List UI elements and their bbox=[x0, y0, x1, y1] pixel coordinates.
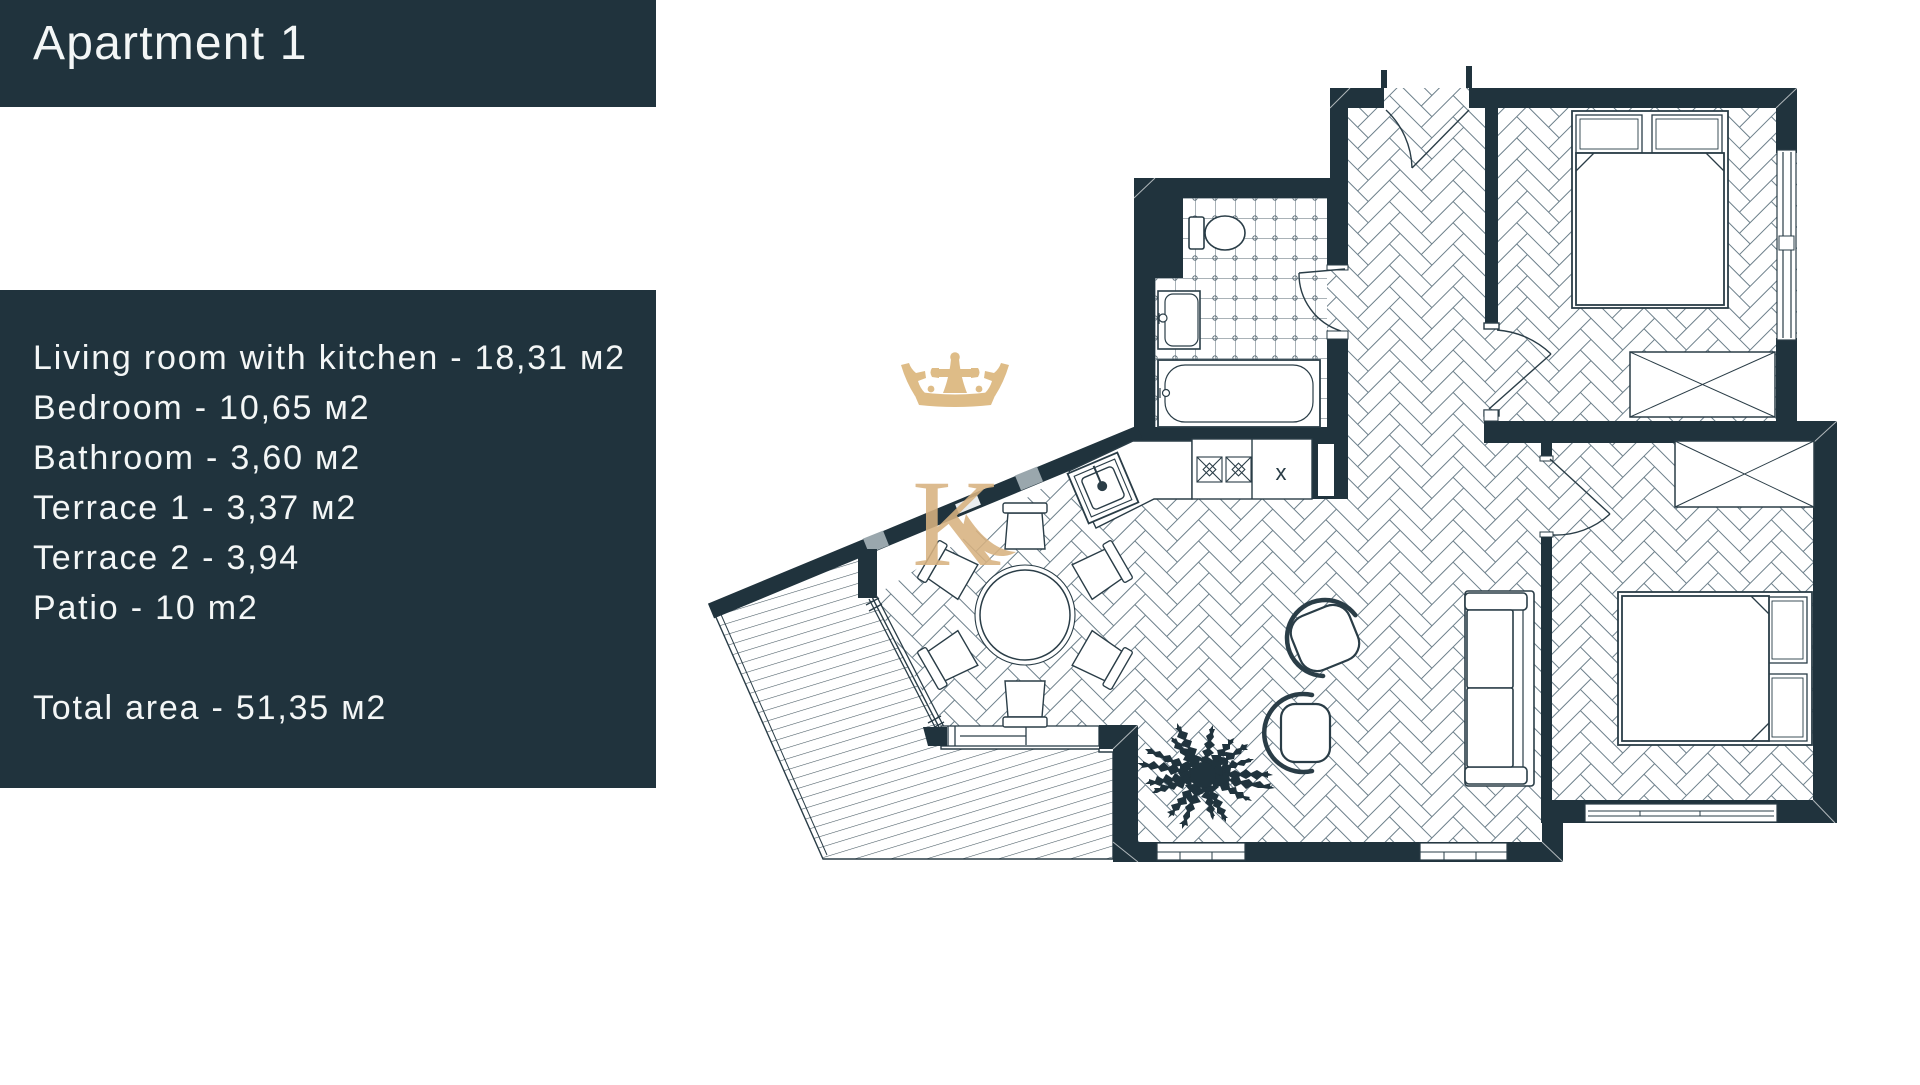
svg-text:x: x bbox=[1276, 460, 1287, 485]
svg-text:K: K bbox=[912, 455, 1002, 592]
